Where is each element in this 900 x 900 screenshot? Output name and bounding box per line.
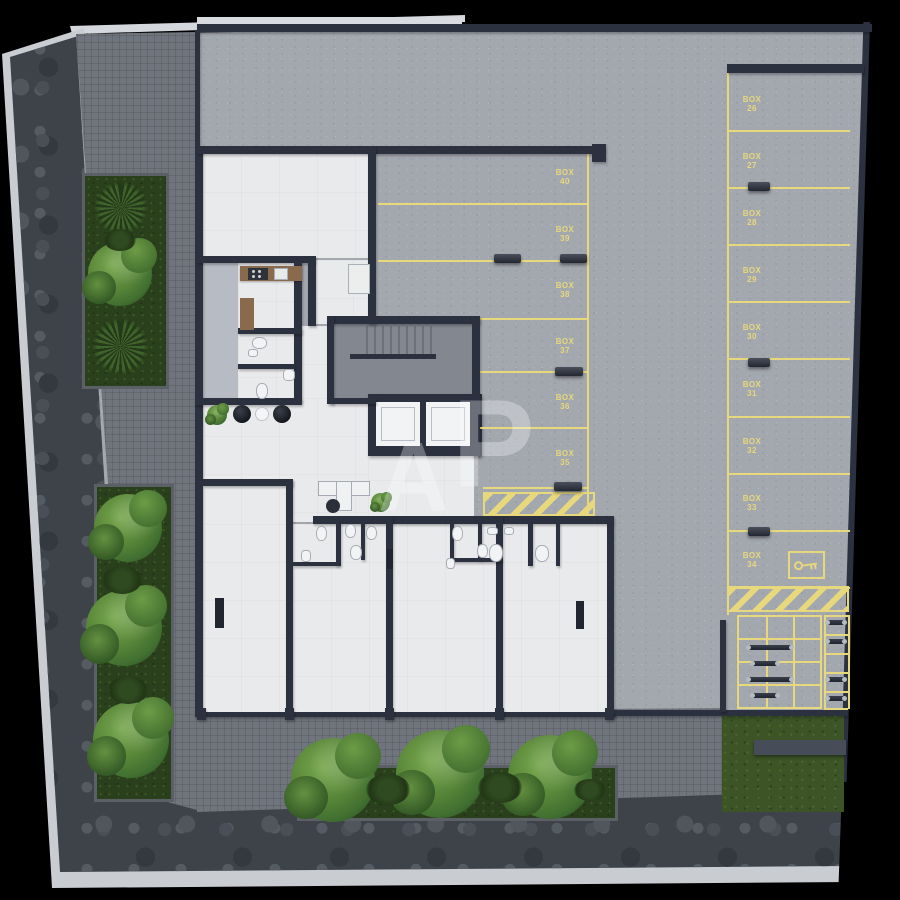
kitchen-counter — [240, 298, 254, 330]
stair-tread — [382, 326, 384, 354]
parking-line — [480, 427, 587, 429]
toilet — [350, 545, 362, 560]
shrub — [108, 676, 148, 704]
no-parking-hatch-middle — [483, 492, 595, 516]
wall — [368, 146, 376, 324]
shrub — [478, 772, 522, 803]
sink — [283, 369, 295, 381]
stair-tread — [414, 326, 416, 354]
parking-line — [727, 187, 850, 189]
parking-box-label-mid-35: BOX35 — [543, 449, 587, 467]
room-floor — [302, 326, 327, 398]
wall — [613, 710, 848, 716]
wall — [203, 479, 293, 486]
wheel-stop — [748, 358, 770, 367]
parking-box-label-text: BOX — [730, 551, 774, 560]
cafe-table-dark — [233, 405, 251, 423]
parking-box-label-text: 31 — [730, 389, 774, 398]
parking-box-label-text: BOX — [543, 393, 587, 402]
parking-box-label-right-30: BOX30 — [730, 323, 774, 341]
storage-room-floor — [203, 263, 238, 398]
parking-box-label-text: BOX — [730, 266, 774, 275]
parking-box-label-text: BOX — [543, 281, 587, 290]
toilet — [452, 526, 463, 541]
parking-box-label-right-31: BOX31 — [730, 380, 774, 398]
parking-line — [824, 691, 848, 693]
parking-line — [737, 638, 820, 640]
door-leaf — [215, 598, 224, 628]
parking-box-label-text: 30 — [730, 332, 774, 341]
stair-tread — [422, 326, 424, 354]
parking-box-label-text: 32 — [730, 446, 774, 455]
parking-box-label-text: 29 — [730, 275, 774, 284]
tree — [86, 590, 162, 666]
stair-tread — [430, 326, 432, 354]
parking-box-label-text: BOX — [730, 380, 774, 389]
parking-line — [727, 416, 850, 418]
bike-rack-icon — [748, 677, 792, 682]
wall — [195, 146, 203, 716]
wall — [607, 516, 614, 716]
parking-box-label-text: BOX — [730, 437, 774, 446]
parking-box-label-right-27: BOX27 — [730, 152, 774, 170]
parking-box-label-text: BOX — [730, 209, 774, 218]
wall-post — [495, 708, 504, 720]
parking-line — [378, 203, 587, 205]
wall — [197, 24, 872, 32]
wall — [195, 398, 302, 405]
elevator-car — [426, 402, 470, 446]
parking-line — [378, 260, 587, 262]
tree — [508, 735, 592, 819]
parking-box-label-text: BOX — [730, 95, 774, 104]
wheel-stop — [494, 254, 521, 263]
toilet — [256, 383, 268, 399]
parking-box-label-text: 37 — [543, 346, 587, 355]
cafe-table-dark — [273, 405, 291, 423]
parking-line — [824, 653, 848, 655]
wall — [293, 562, 339, 566]
parking-box-label-text: 28 — [730, 218, 774, 227]
elevator-car-inner — [381, 407, 415, 441]
wall-post — [385, 708, 394, 720]
stair-tread — [398, 326, 400, 354]
wall — [386, 516, 393, 716]
parking-box-label-text: 36 — [543, 402, 587, 411]
wall — [327, 316, 334, 404]
wall — [556, 522, 560, 566]
garden-bench — [754, 740, 846, 755]
toilet — [345, 524, 356, 538]
parking-box-label-text: 27 — [730, 161, 774, 170]
parking-box-label-text: BOX — [543, 449, 587, 458]
stair-tread — [406, 326, 408, 354]
parking-line — [587, 150, 589, 516]
tree — [291, 738, 375, 822]
wall — [197, 146, 604, 154]
parking-box-label-right-32: BOX32 — [730, 437, 774, 455]
tree — [94, 494, 162, 562]
wall — [195, 30, 200, 148]
toilet — [366, 526, 377, 540]
stove-burner — [258, 270, 261, 273]
parking-box-label-text: 34 — [730, 560, 774, 569]
stairwell-floor — [334, 324, 472, 398]
wall — [313, 516, 613, 524]
tree — [93, 702, 169, 778]
wall — [472, 316, 480, 456]
parking-box-label-text: 38 — [543, 290, 587, 299]
toilet — [535, 545, 549, 562]
bike-rack-icon — [827, 677, 845, 682]
sink — [301, 550, 311, 562]
elevator-car-inner — [431, 407, 465, 441]
wall-post — [605, 708, 614, 720]
stair-tread — [374, 326, 376, 354]
shrub — [366, 774, 410, 805]
parking-box-label-right-34: BOX34 — [730, 551, 774, 569]
toilet — [489, 544, 503, 562]
key-box — [788, 551, 825, 579]
bike-rack-icon — [827, 620, 845, 625]
parking-line — [727, 130, 850, 132]
shrub — [574, 779, 606, 801]
key-icon — [793, 557, 820, 573]
wheel-stop — [748, 527, 770, 536]
wall-post — [285, 708, 294, 720]
parking-box-label-mid-37: BOX37 — [543, 337, 587, 355]
wall — [330, 316, 480, 324]
parking-box-label-text: 39 — [543, 234, 587, 243]
bike-rack-icon — [752, 661, 778, 666]
sink — [504, 527, 514, 535]
parking-line — [737, 615, 820, 617]
garden-grass — [722, 714, 844, 812]
tree — [88, 242, 153, 307]
toilet — [477, 544, 488, 558]
wall — [727, 64, 864, 73]
sink — [487, 527, 498, 535]
door-leaf — [387, 549, 393, 569]
parking-box-label-mid-36: BOX36 — [543, 393, 587, 411]
wall — [592, 144, 606, 162]
parking-box-label-text: BOX — [543, 168, 587, 177]
parking-line — [727, 473, 850, 475]
parking-box-label-text: 33 — [730, 503, 774, 512]
parking-line — [824, 672, 848, 674]
elevator-car — [376, 402, 420, 446]
tree — [94, 181, 147, 234]
toilet — [316, 526, 327, 541]
parking-box-label-text: BOX — [543, 337, 587, 346]
parking-line — [737, 684, 820, 686]
parking-line — [737, 615, 739, 709]
parking-line — [727, 244, 850, 246]
sink — [248, 349, 258, 357]
parking-line — [793, 615, 795, 709]
parking-box-label-mid-39: BOX39 — [543, 225, 587, 243]
wheel-stop — [560, 254, 587, 263]
wall — [330, 398, 376, 404]
stove-burner — [252, 270, 255, 273]
wall — [195, 712, 615, 717]
stove-burner — [258, 275, 261, 278]
parking-box-label-mid-40: BOX40 — [543, 168, 587, 186]
stove-burner — [252, 275, 255, 278]
tree — [396, 730, 483, 817]
parking-box-label-text: BOX — [730, 323, 774, 332]
bike-rack-icon — [752, 693, 778, 698]
floor-plan-render: A P BOX40BOX39BOX38BOX37BOX36BOX35BOX26B… — [0, 0, 900, 900]
wheel-stop — [748, 182, 770, 191]
wall-post — [197, 708, 206, 720]
parking-box-label-text: 26 — [730, 104, 774, 113]
parking-line — [824, 615, 848, 617]
parking-line — [727, 301, 850, 303]
parking-line — [824, 615, 826, 709]
parking-line — [480, 318, 587, 320]
parking-box-label-text: BOX — [543, 225, 587, 234]
parking-line — [820, 615, 822, 709]
cafe-table-white — [255, 407, 269, 421]
parking-box-label-text: BOX — [730, 494, 774, 503]
wheel-stop — [554, 482, 582, 491]
wall — [286, 479, 293, 716]
shrub — [102, 566, 142, 594]
parking-line — [824, 634, 848, 636]
door-leaf — [576, 601, 584, 629]
parking-box-label-right-26: BOX26 — [730, 95, 774, 113]
stair-railing — [350, 354, 436, 359]
stair-tread — [390, 326, 392, 354]
parking-box-label-mid-38: BOX38 — [543, 281, 587, 299]
closet — [348, 264, 370, 294]
parking-line — [727, 530, 850, 532]
bike-rack-icon — [827, 696, 845, 701]
parking-box-label-right-33: BOX33 — [730, 494, 774, 512]
wheel-stop — [555, 367, 583, 376]
no-parking-hatch-right — [727, 586, 849, 612]
shrub — [104, 229, 136, 251]
parking-box-label-right-28: BOX28 — [730, 209, 774, 227]
parking-line — [727, 358, 850, 360]
parking-line — [848, 615, 850, 709]
wall — [308, 256, 316, 326]
parking-box-label-right-29: BOX29 — [730, 266, 774, 284]
stair-tread — [366, 326, 368, 354]
parking-line — [727, 70, 729, 615]
parking-box-label-text: 40 — [543, 177, 587, 186]
parking-box-label-text: BOX — [730, 152, 774, 161]
toilet — [252, 337, 267, 349]
parking-line — [737, 707, 820, 709]
bike-rack-icon — [748, 645, 792, 650]
wall — [528, 522, 533, 566]
wall — [336, 522, 341, 566]
kitchen-fridge — [274, 268, 288, 280]
sink — [446, 558, 455, 569]
bike-rack-icon — [827, 639, 845, 644]
desk-chair — [326, 499, 340, 513]
wall — [720, 620, 726, 712]
room-floor — [203, 154, 368, 258]
parking-box-label-text: 35 — [543, 458, 587, 467]
